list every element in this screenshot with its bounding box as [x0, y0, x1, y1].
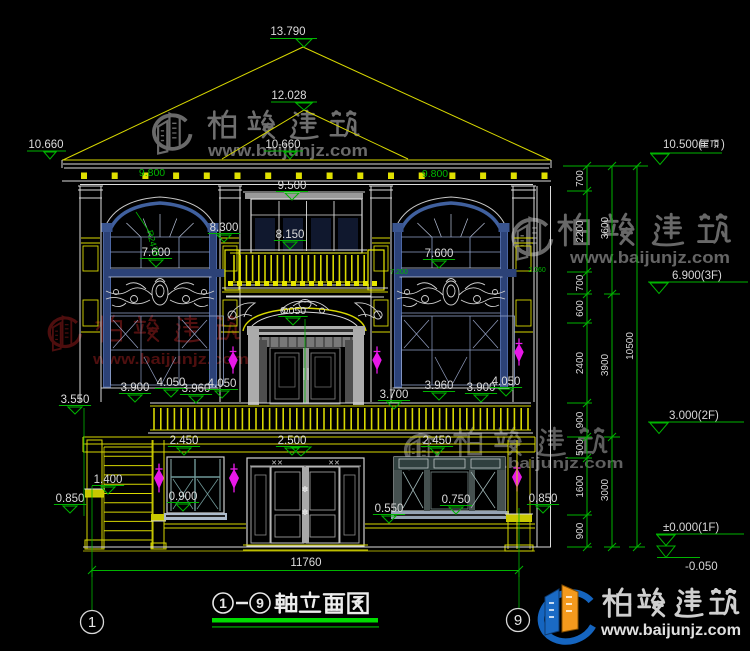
svg-text:0.850: 0.850 [56, 493, 85, 505]
svg-text:±0.000(1F): ±0.000(1F) [663, 522, 719, 534]
svg-text:7.600: 7.600 [425, 248, 454, 260]
svg-text:1600: 1600 [575, 475, 586, 498]
svg-text:3.700: 3.700 [380, 389, 409, 401]
svg-text:3.550: 3.550 [61, 394, 90, 406]
svg-text:3.000(2F): 3.000(2F) [669, 410, 719, 422]
svg-text:9: 9 [514, 612, 522, 629]
svg-text:12.028: 12.028 [271, 90, 306, 102]
svg-text:10.660: 10.660 [28, 139, 63, 151]
svg-text:3.900: 3.900 [121, 382, 150, 394]
svg-text:1: 1 [219, 595, 227, 611]
svg-text:3000: 3000 [600, 478, 611, 501]
svg-text:0.850: 0.850 [529, 493, 558, 505]
svg-text:500: 500 [575, 439, 586, 456]
svg-text:3900: 3900 [600, 353, 611, 376]
svg-text:6.050: 6.050 [280, 305, 306, 317]
svg-text:8.150: 8.150 [276, 229, 305, 241]
svg-text:700: 700 [575, 274, 586, 291]
svg-text:3.960: 3.960 [425, 380, 454, 392]
svg-text:1: 1 [88, 614, 96, 631]
svg-text:9: 9 [256, 595, 264, 611]
svg-text:2.450: 2.450 [170, 435, 199, 447]
svg-text:900: 900 [575, 411, 586, 428]
svg-text:13.790: 13.790 [270, 26, 305, 38]
svg-text:8.300: 8.300 [210, 222, 239, 234]
svg-text:4.050: 4.050 [208, 378, 237, 390]
svg-text:2200: 2200 [575, 220, 586, 243]
svg-text:10500: 10500 [625, 332, 636, 360]
svg-text:11760: 11760 [290, 557, 321, 569]
svg-text:9.800: 9.800 [139, 167, 165, 179]
svg-text:✕✕: ✕✕ [271, 460, 283, 467]
svg-text:1.400: 1.400 [94, 474, 123, 486]
svg-text:3600: 3600 [600, 216, 611, 239]
svg-text:2400: 2400 [575, 351, 586, 374]
svg-text:2.500: 2.500 [278, 435, 307, 447]
svg-text:2.450: 2.450 [423, 435, 452, 447]
svg-text:6.900(3F): 6.900(3F) [672, 270, 722, 282]
svg-text:10.660: 10.660 [265, 139, 300, 151]
svg-text:2.060: 2.060 [528, 267, 546, 274]
svg-text:): ) [721, 139, 725, 151]
svg-text:www.baijunjz.com: www.baijunjz.com [569, 248, 730, 267]
svg-text:-0.050: -0.050 [685, 561, 718, 573]
svg-text:www.baijunjz.com: www.baijunjz.com [600, 622, 741, 639]
svg-text:9.500: 9.500 [278, 180, 307, 192]
svg-text:4.050: 4.050 [492, 376, 521, 388]
svg-text:700: 700 [575, 170, 586, 187]
svg-text:www.baijunjz.com: www.baijunjz.com [92, 352, 249, 368]
svg-text:7.200: 7.200 [390, 269, 408, 276]
svg-text:9.800: 9.800 [422, 168, 448, 180]
svg-text:600: 600 [575, 300, 586, 317]
svg-text:✽: ✽ [302, 485, 309, 494]
svg-text:10.500(: 10.500( [663, 139, 702, 151]
svg-text:0.550: 0.550 [375, 503, 404, 515]
svg-text:✕✕: ✕✕ [328, 460, 340, 467]
svg-text:900: 900 [575, 522, 586, 539]
svg-text:0.900: 0.900 [169, 491, 198, 503]
svg-text:✽: ✽ [302, 508, 309, 517]
svg-text:0.750: 0.750 [442, 494, 471, 506]
